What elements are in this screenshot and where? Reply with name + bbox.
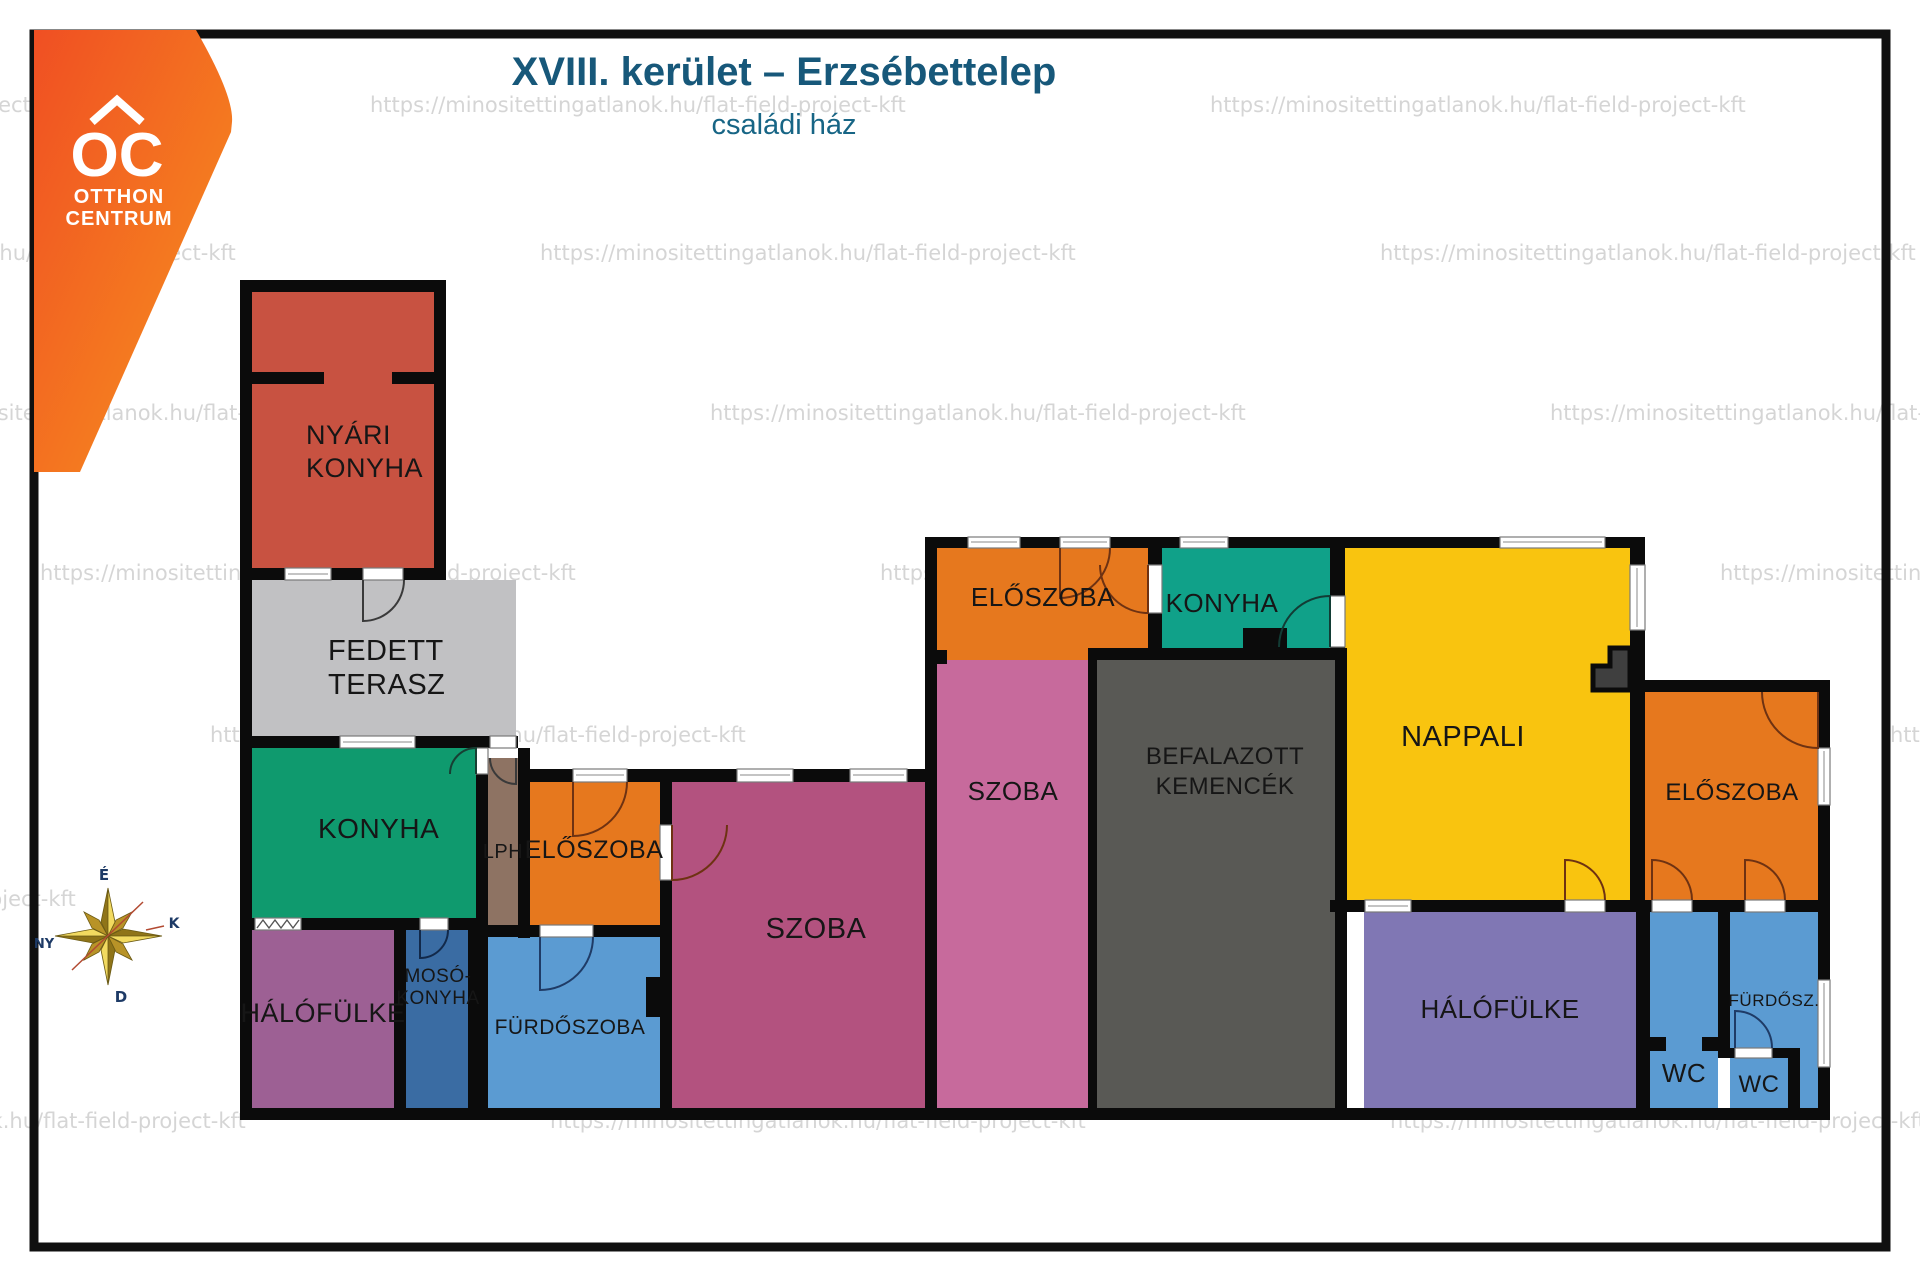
label-halofulke-right: HÁLÓFÜLKE	[1420, 994, 1579, 1024]
logo-mark: OC	[71, 121, 164, 190]
compass-south: D	[115, 988, 127, 1006]
watermark-text: https://minositettingatlanok.hu/flat-fie…	[1890, 723, 1920, 747]
label-konyha-left: KONYHA	[318, 813, 439, 844]
label-moso-konyha: MOSÓ-	[405, 965, 472, 987]
label-szoba-2: SZOBA	[968, 776, 1059, 806]
label-wc-2: WC	[1739, 1071, 1780, 1098]
room-befalazott-kemencek	[1097, 660, 1335, 1108]
label-eloszoba-right: ELŐSZOBA	[1665, 779, 1798, 806]
floor-plan-page: https://minositettingatlanok.hu/flat-fie…	[0, 0, 1920, 1281]
page-title: XVIII. kerület – Erzsébettelep	[512, 50, 1057, 94]
room-furdosz-extension	[1800, 1048, 1818, 1108]
watermark-text: https://minositettingatlanok.hu/flat-fie…	[1210, 93, 1746, 117]
room-furdosz	[1730, 912, 1818, 1048]
compass-west: NY	[34, 937, 55, 952]
label-lph: LPH	[483, 841, 523, 863]
compass-north: É	[99, 865, 109, 884]
watermark-text: https://minositettingatlanok.hu/flat-fie…	[540, 241, 1076, 265]
floor-plan-canvas: https://minositettingatlanok.hu/flat-fie…	[0, 0, 1920, 1281]
watermark-text: https://minositettingatlanok.hu/flat-fie…	[1550, 401, 1920, 425]
label-eloszoba-top: ELŐSZOBA	[971, 582, 1115, 612]
watermark-text: https://minositettingatlanok.hu/flat-fie…	[710, 401, 1246, 425]
svg-text:KONYHA: KONYHA	[396, 988, 479, 1009]
svg-text:KEMENCÉK: KEMENCÉK	[1156, 773, 1295, 800]
svg-text:KONYHA: KONYHA	[306, 453, 423, 483]
label-wc-1: WC	[1662, 1058, 1706, 1088]
label-konyha-teal: KONYHA	[1166, 588, 1279, 618]
label-szoba-1: SZOBA	[766, 913, 867, 945]
room-szoba-1	[672, 782, 925, 1108]
svg-text:TERASZ: TERASZ	[328, 669, 445, 701]
label-befalazott: BEFALAZOTT	[1146, 743, 1304, 770]
logo-name-line1: OTTHON	[74, 186, 164, 208]
watermark-text: https://minositettingatlanok.hu/flat-fie…	[1380, 241, 1916, 265]
label-halofulke-left: HÁLÓFÜLKE	[240, 997, 405, 1028]
label-furdoszoba: FÜRDŐSZOBA	[495, 1016, 646, 1039]
label-fedett-terasz: FEDETT	[328, 635, 444, 667]
label-nappali: NAPPALI	[1401, 721, 1525, 753]
label-nyari-konyha: NYÁRI	[306, 420, 391, 450]
logo-name-line2: CENTRUM	[66, 208, 173, 230]
compass-east: K	[169, 916, 181, 932]
page-subtitle: családi ház	[711, 109, 856, 141]
label-furdosz: FÜRDŐSZ.	[1729, 991, 1820, 1010]
label-eloszoba-left: ELŐSZOBA	[525, 835, 664, 864]
room-moso-konyha	[406, 930, 468, 1108]
room-szoba-2	[937, 660, 1088, 1108]
